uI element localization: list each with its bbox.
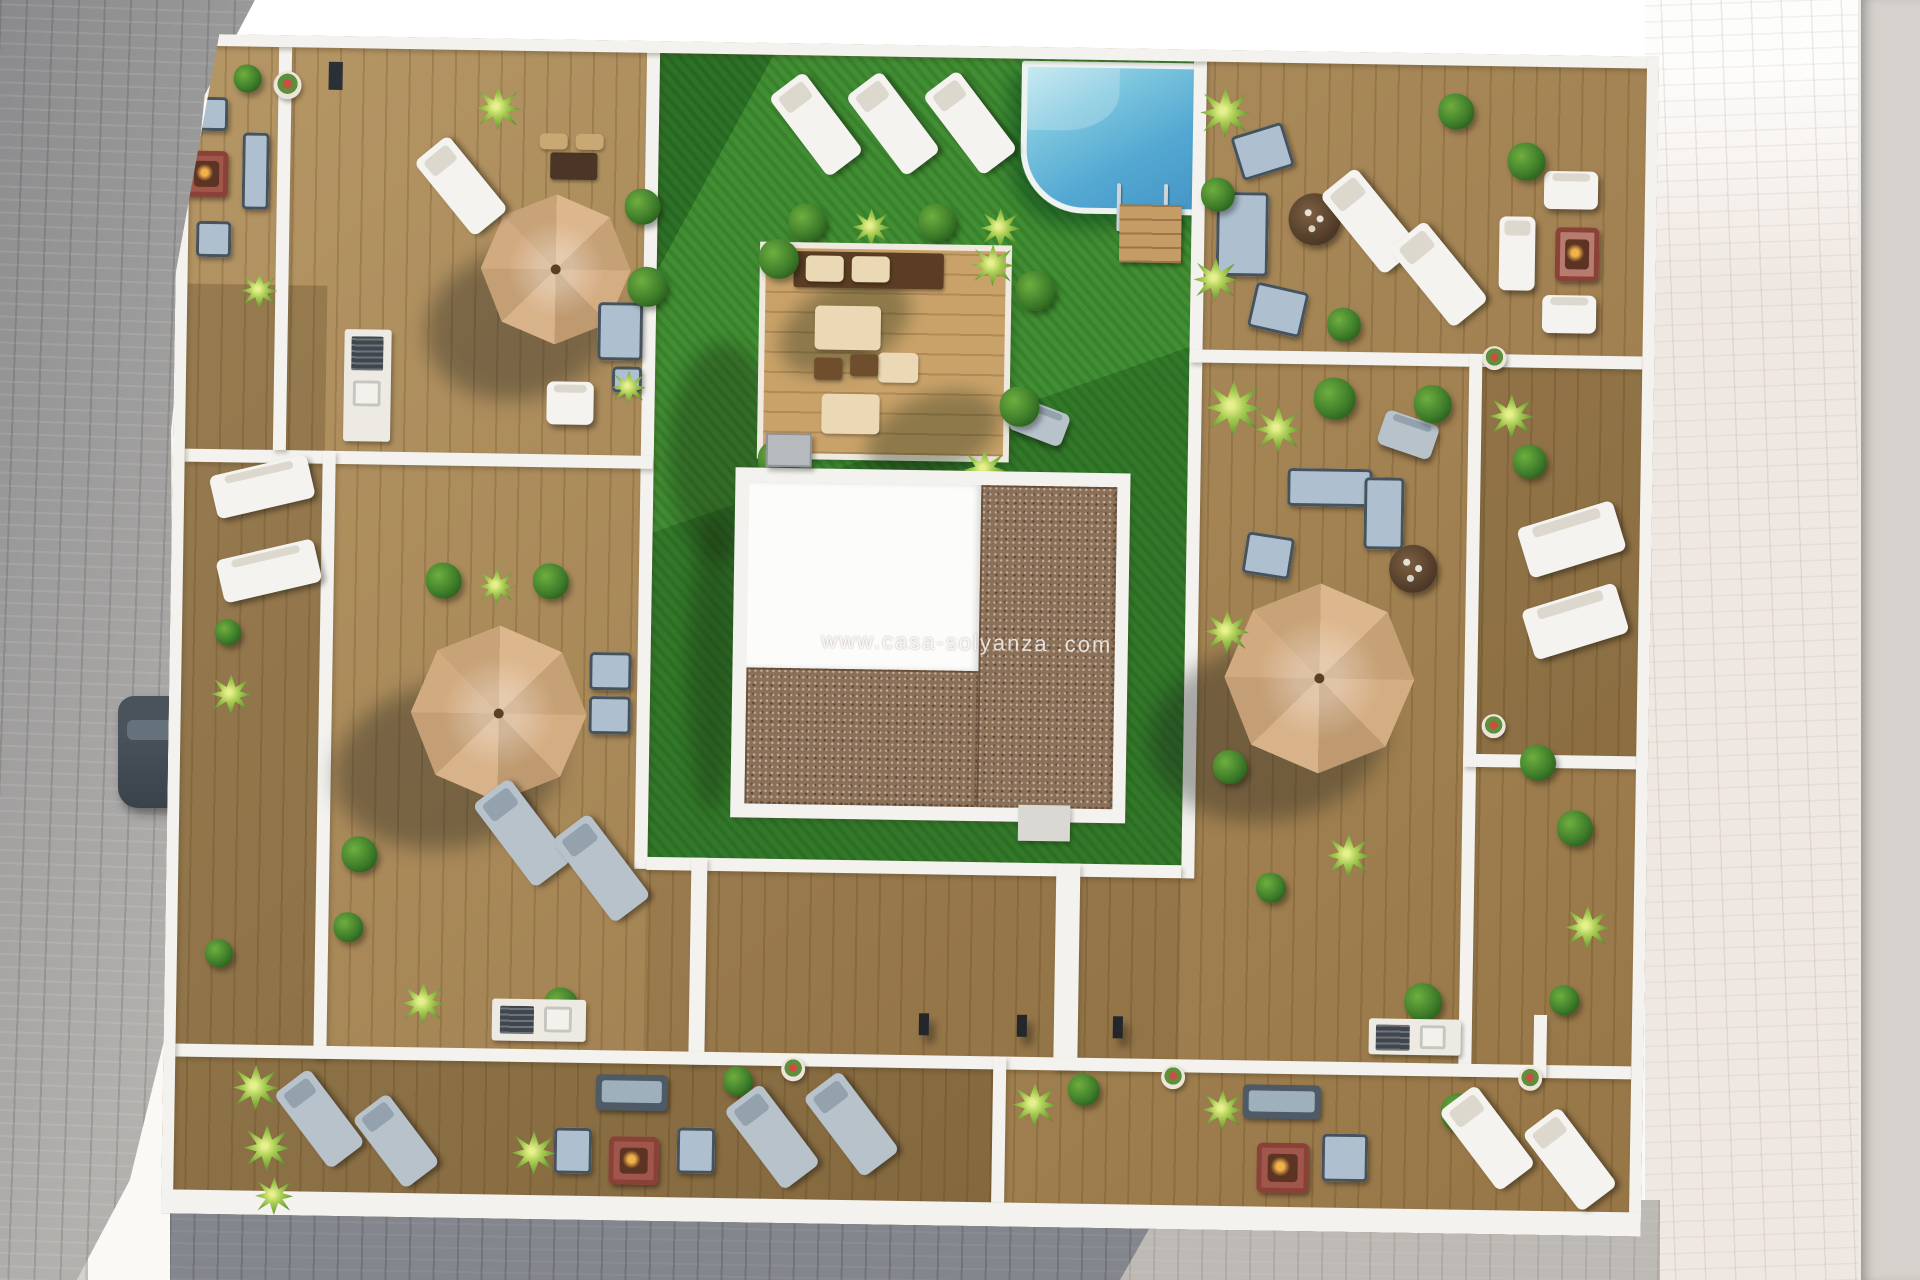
armchair-white [1544, 171, 1599, 210]
fire-pit-table [1256, 1143, 1309, 1194]
seat-cushion [814, 305, 881, 350]
bush [1513, 444, 1548, 479]
bush [1557, 810, 1594, 847]
bush [1256, 872, 1286, 902]
wall-lamp [328, 62, 342, 90]
armchair [588, 696, 631, 735]
bush [426, 562, 463, 599]
bush [233, 64, 261, 92]
bush [918, 203, 957, 242]
bush [624, 188, 661, 225]
fire-pit-table [1555, 227, 1600, 282]
sink [1420, 1025, 1446, 1049]
bush [533, 563, 570, 600]
bush [205, 939, 233, 967]
outdoor-sofa [1242, 1084, 1321, 1119]
bbq-grill [500, 1006, 534, 1035]
seat-cushion [878, 352, 918, 383]
sink [353, 380, 381, 406]
bollard-lamp [1017, 1015, 1027, 1037]
bbq-grill [351, 336, 384, 370]
armchair [677, 1127, 716, 1174]
armchair-white [1498, 216, 1535, 291]
coffee-table [850, 354, 878, 376]
armchair [1241, 531, 1295, 580]
armchair-white [1542, 295, 1597, 334]
apartment-building-rooftop: www.casa-solyanza .com [161, 33, 1659, 1236]
seat-cushion [806, 255, 844, 282]
seat-cushion [852, 256, 890, 283]
core-ledge [1018, 805, 1071, 842]
bush [999, 386, 1040, 427]
bush [1201, 178, 1236, 213]
bush [333, 912, 363, 942]
sink [544, 1006, 572, 1032]
bush [759, 239, 800, 280]
outdoor-sofa [242, 132, 270, 209]
bollard-lamp [1113, 1016, 1123, 1038]
sidewalk-pavers-right [1645, 0, 1860, 1280]
bush [1015, 271, 1056, 312]
bush [1507, 142, 1546, 181]
armchair [196, 221, 232, 258]
aerial-render-scene: www.casa-solyanza .com [0, 0, 1920, 1280]
bush [341, 836, 378, 873]
armchair [1321, 1134, 1368, 1183]
bush [1549, 985, 1579, 1015]
outdoor-sofa [597, 302, 643, 361]
street-road-right [1858, 0, 1920, 1280]
bush [1313, 377, 1356, 420]
outdoor-sofa [595, 1074, 668, 1111]
outdoor-sofa [1287, 468, 1373, 507]
bollard-lamp [919, 1013, 929, 1035]
bush [1068, 1074, 1100, 1106]
bush [627, 267, 668, 308]
dining-table [550, 152, 597, 180]
parapet-wall [991, 1056, 1006, 1202]
utility-box [766, 433, 813, 468]
walkway [688, 858, 707, 1065]
bench-cushion [540, 133, 568, 149]
watermark-text: www.casa-solyanza .com [797, 627, 1137, 658]
pool-steps-deck [1119, 204, 1182, 263]
bush [788, 203, 827, 242]
bush [1438, 93, 1475, 130]
coffee-table [814, 357, 842, 379]
gravel-roof-bottom [744, 667, 978, 807]
bench-cushion [576, 134, 604, 150]
outdoor-sofa [1363, 477, 1404, 550]
bush [1327, 308, 1362, 343]
swimming-pool [1020, 61, 1202, 216]
armchair [589, 652, 632, 691]
armchair [553, 1127, 592, 1174]
walkway [1053, 863, 1080, 1070]
bush [215, 619, 241, 645]
bush [1404, 983, 1443, 1022]
bbq-grill [1376, 1024, 1410, 1051]
fire-pit-table [608, 1136, 659, 1185]
armchair-white [546, 381, 594, 425]
bush [1213, 750, 1248, 785]
bush [1413, 385, 1452, 424]
seat-cushion [821, 394, 880, 435]
bush [1520, 745, 1557, 782]
